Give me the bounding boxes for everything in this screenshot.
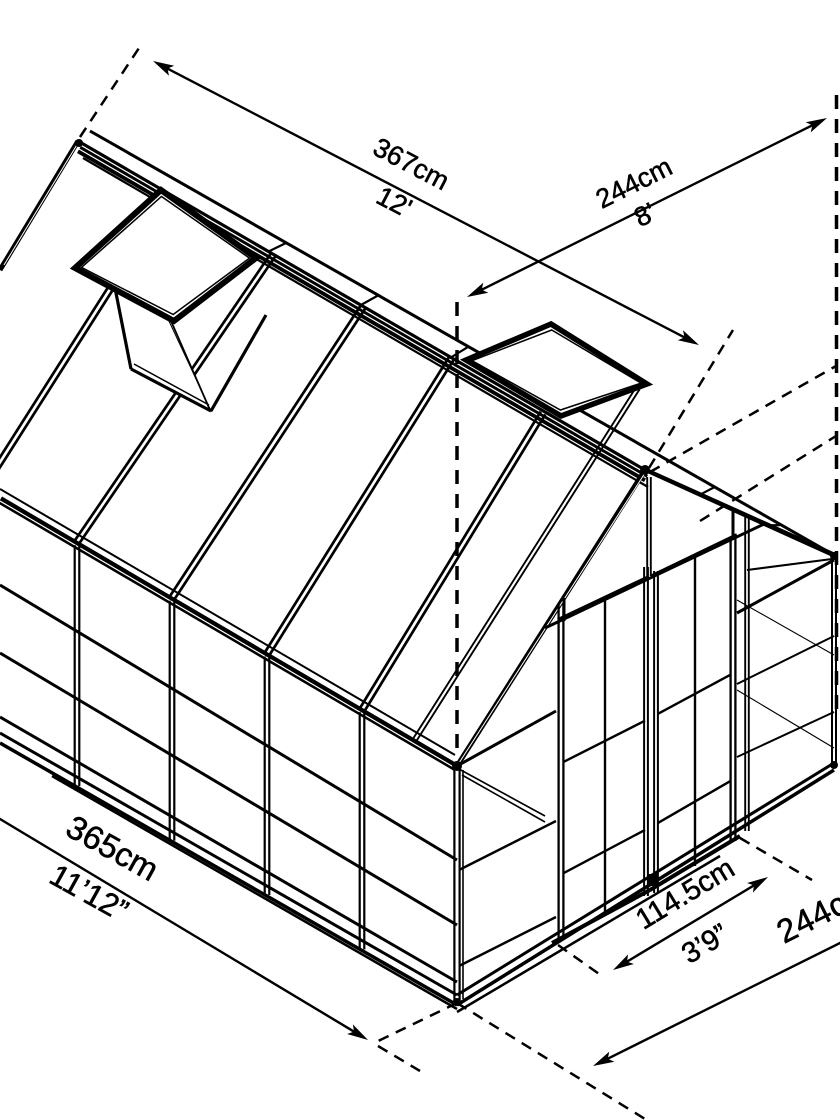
svg-text:114.5cm: 114.5cm xyxy=(630,852,740,936)
svg-text:367cm: 367cm xyxy=(368,132,454,196)
svg-text:244cm: 244cm xyxy=(771,872,840,951)
svg-text:12': 12' xyxy=(372,181,417,224)
